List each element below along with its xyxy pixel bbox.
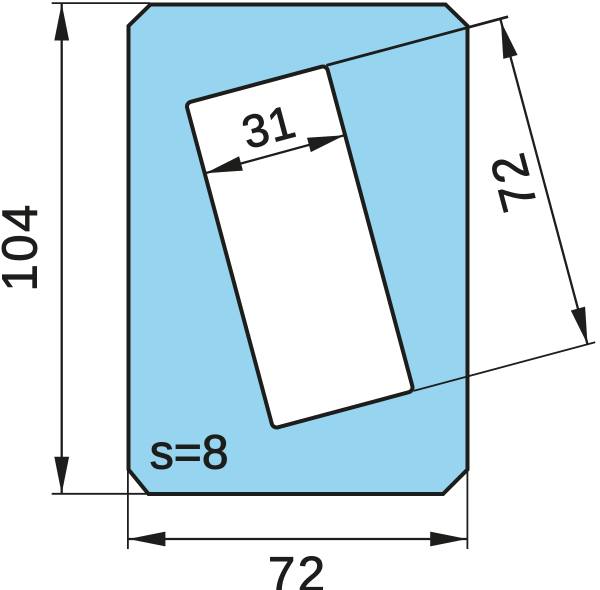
svg-text:104: 104 (0, 202, 47, 291)
svg-text:72: 72 (268, 548, 328, 590)
svg-text:s=8: s=8 (150, 426, 229, 479)
